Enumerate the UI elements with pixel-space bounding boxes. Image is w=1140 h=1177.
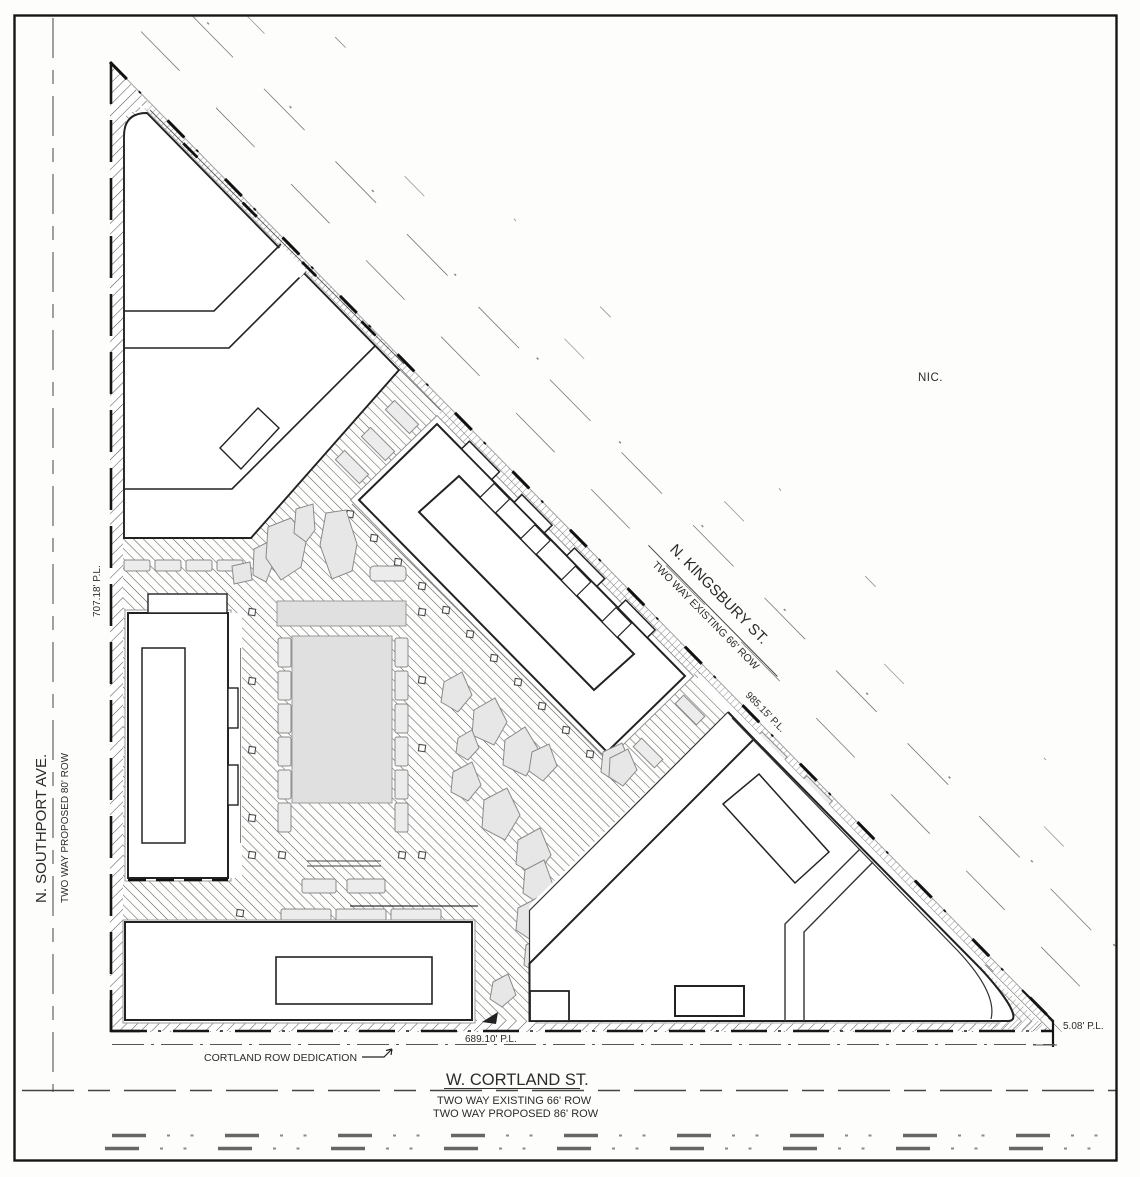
svg-text:TWO WAY PROPOSED 80' ROW: TWO WAY PROPOSED 80' ROW [60, 752, 71, 903]
svg-text:5.08' P.L.: 5.08' P.L. [1063, 1021, 1104, 1032]
svg-text:689.10' P.L.: 689.10' P.L. [465, 1034, 517, 1045]
svg-text:CORTLAND ROW DEDICATION: CORTLAND ROW DEDICATION [204, 1052, 357, 1064]
svg-text:707.18' P.L.: 707.18' P.L. [92, 565, 103, 617]
svg-text:TWO WAY EXISTING 66' ROW: TWO WAY EXISTING 66' ROW [437, 1095, 592, 1107]
svg-text:W. CORTLAND ST.: W. CORTLAND ST. [446, 1071, 589, 1089]
svg-text:NIC.: NIC. [918, 372, 943, 384]
svg-text:TWO WAY PROPOSED 86' ROW: TWO WAY PROPOSED 86' ROW [433, 1108, 599, 1120]
svg-text:N. SOUTHPORT AVE.: N. SOUTHPORT AVE. [33, 754, 50, 903]
